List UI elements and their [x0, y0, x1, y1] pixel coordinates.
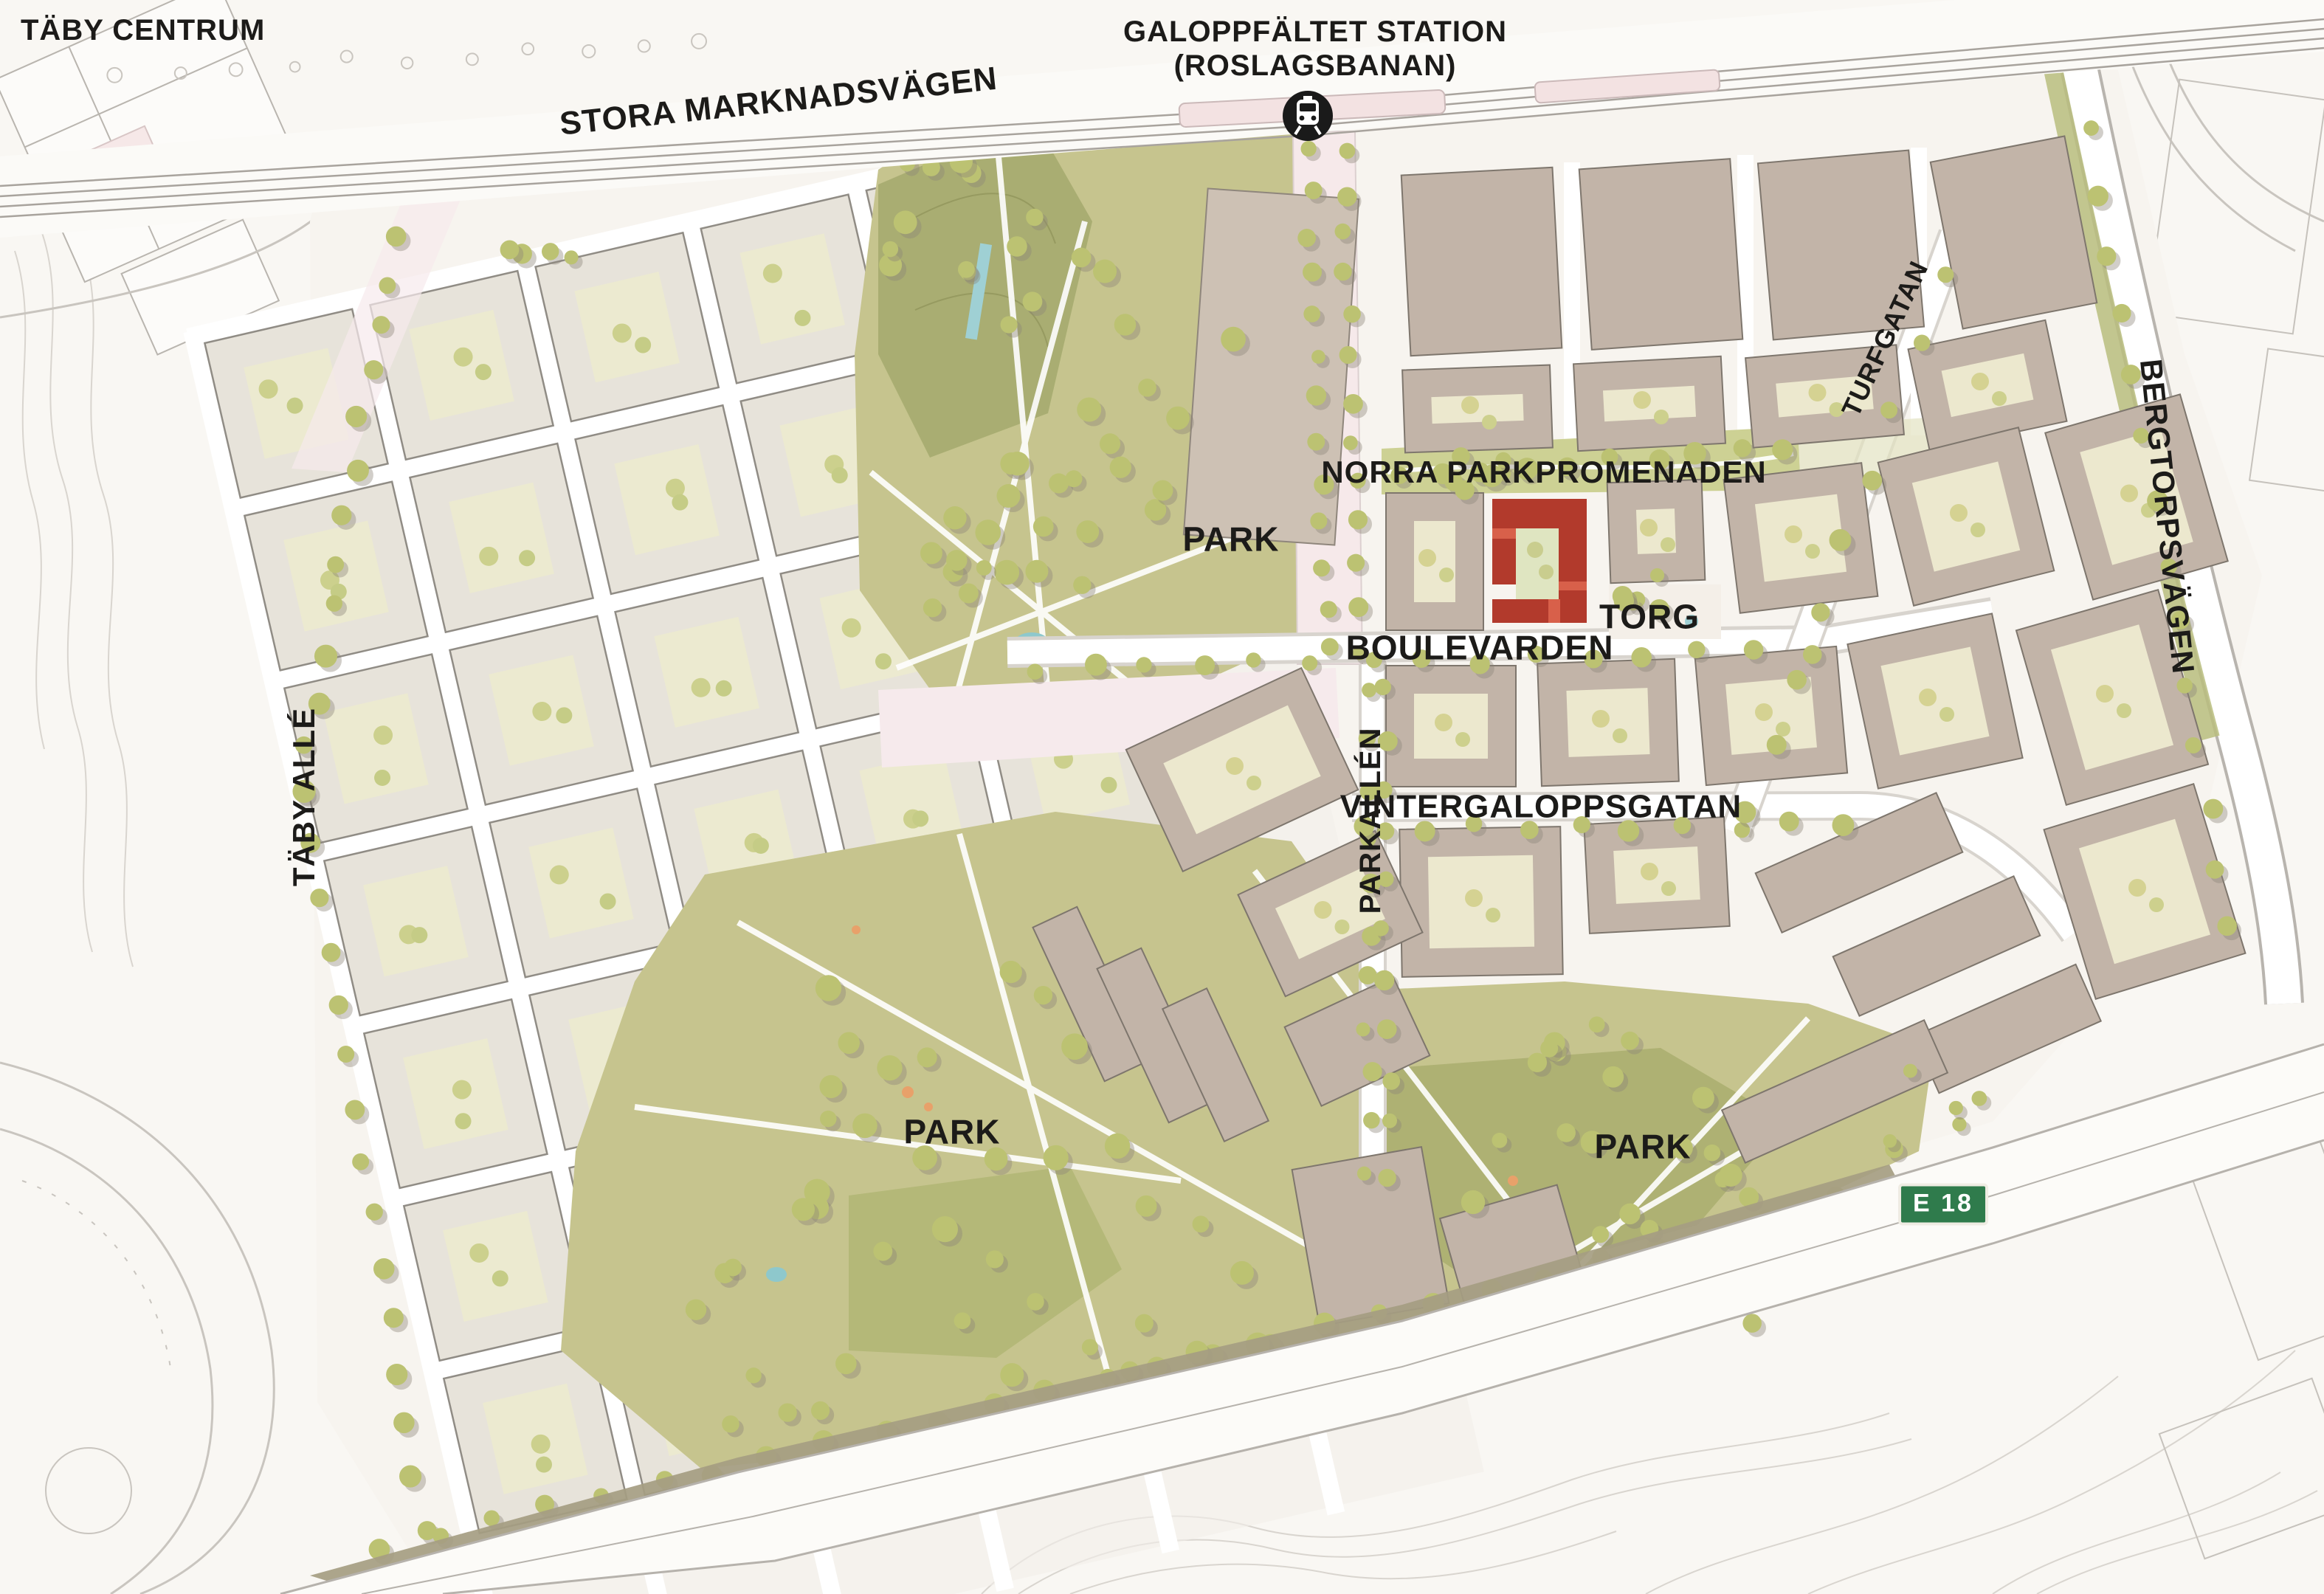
highlight-courtyard [1516, 528, 1559, 599]
red-highlight-block [1492, 499, 1587, 623]
label-park-southwest: PARK [904, 1113, 1001, 1152]
train-icon [1283, 91, 1333, 141]
map-canvas [0, 0, 2324, 1594]
label-torg: TORG [1599, 598, 1700, 637]
label-park-southeast: PARK [1595, 1128, 1692, 1167]
label-park-north: PARK [1183, 520, 1280, 559]
e18-highway-sign: E 18 [1898, 1184, 1988, 1226]
label-vintergaloppsgatan: VINTERGALOPPSGATAN [1340, 789, 1742, 827]
label-taby-centrum: TÄBY CENTRUM [21, 13, 265, 47]
label-station: GALOPPFÄLTET STATION (ROSLAGSBANAN) [1123, 15, 1507, 83]
label-station-line1: GALOPPFÄLTET STATION [1123, 15, 1507, 49]
label-parkallen: PARKALLÉN [1354, 728, 1387, 914]
e18-sign-label: E 18 [1913, 1190, 1973, 1218]
label-station-line2: (ROSLAGSBANAN) [1123, 49, 1507, 83]
site-plan-map: TÄBY CENTRUM STORA MARKNADSVÄGEN GALOPPF… [0, 0, 2324, 1594]
label-taby-alle: TÄBY ALLÉ [286, 708, 322, 886]
label-norra-parkpromenaden: NORRA PARKPROMENADEN [1321, 455, 1766, 490]
label-boulevarden: BOULEVARDEN [1346, 629, 1614, 668]
